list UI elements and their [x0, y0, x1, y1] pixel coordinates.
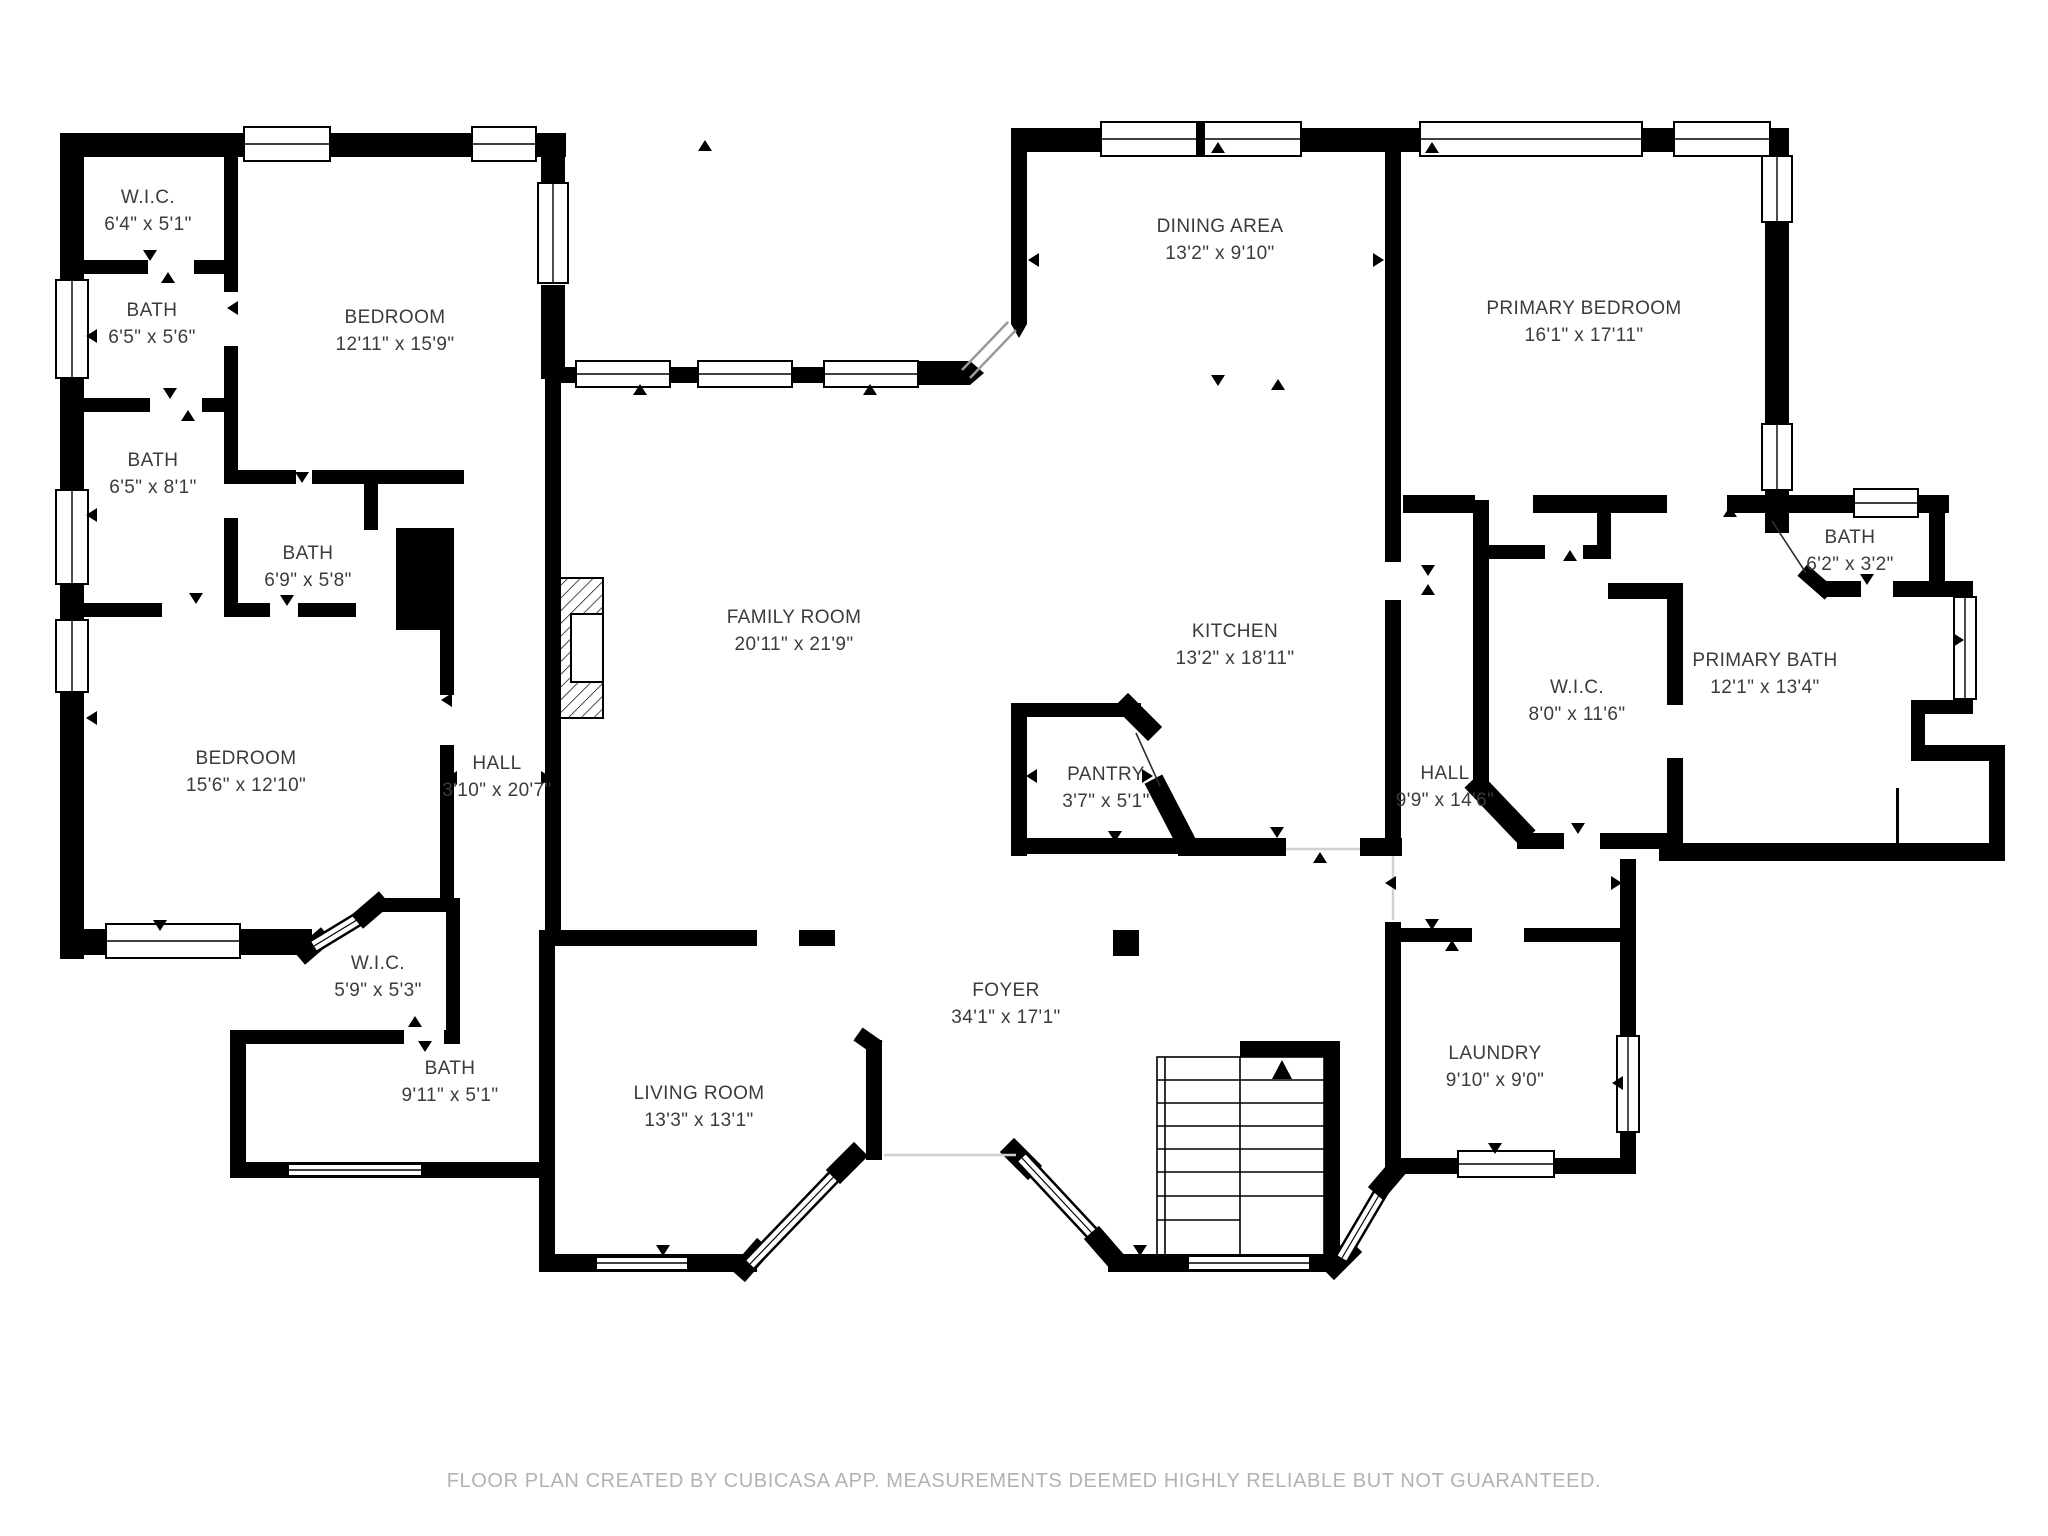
room-label-bedroom-top: BEDROOM12'11" x 15'9": [336, 304, 455, 358]
door-arrow-icon: [1270, 827, 1284, 838]
door-arrow-icon: [408, 1016, 422, 1027]
door-arrow-icon: [161, 272, 175, 283]
door-arrow-icon: [418, 1041, 432, 1052]
door-arrow-icon: [295, 472, 309, 483]
door-arrow-icon: [441, 693, 452, 707]
room-label-primary-bedroom: PRIMARY BEDROOM16'1" x 17'11": [1486, 295, 1681, 349]
door-arrow-icon: [698, 140, 712, 151]
room-label-living-room: LIVING ROOM13'3" x 13'1": [633, 1080, 764, 1134]
door-arrow-icon: [1571, 823, 1585, 834]
room-label-bath-mid-left: BATH6'5" x 8'1": [109, 447, 196, 501]
room-label-bedroom-left: BEDROOM15'6" x 12'10": [186, 745, 306, 799]
door-arrow-icon: [1026, 769, 1037, 783]
door-arrow-icon: [227, 301, 238, 315]
room-label-pantry: PANTRY3'7" x 5'1": [1062, 761, 1149, 815]
door-arrow-icon: [1421, 584, 1435, 595]
room-label-primary-bath: PRIMARY BATH12'1" x 13'4": [1692, 647, 1837, 701]
door-arrow-icon: [1421, 565, 1435, 576]
door-arrow-icon: [189, 593, 203, 604]
room-label-foyer: FOYER34'1" x 17'1": [951, 977, 1060, 1031]
room-label-hall-right: HALL9'9" x 14'6": [1396, 760, 1494, 814]
door-arrow-icon: [1373, 253, 1384, 267]
room-label-bath-top-left: BATH6'5" x 5'6": [108, 297, 195, 351]
room-label-bath-top-right: BATH6'2" x 3'2": [1806, 524, 1893, 578]
room-label-family-room: FAMILY ROOM20'11" x 21'9": [727, 604, 862, 658]
door-arrow-icon: [1385, 876, 1396, 890]
room-label-wic-top-left: W.I.C.6'4" x 5'1": [104, 184, 191, 238]
room-label-wic-bottom-left: W.I.C.5'9" x 5'3": [334, 950, 421, 1004]
door-arrow-icon: [86, 711, 97, 725]
fireplace: [553, 578, 603, 718]
room-label-dining-area: DINING AREA13'2" x 9'10": [1157, 213, 1284, 267]
room-label-kitchen: KITCHEN13'2" x 18'11": [1176, 618, 1295, 672]
door-arrow-icon: [1028, 253, 1039, 267]
door-arrow-icon: [163, 388, 177, 399]
room-label-wic-right: W.I.C.8'0" x 11'6": [1528, 674, 1625, 728]
door-arrow-icon: [1563, 550, 1577, 561]
staircase: [1157, 1057, 1324, 1255]
stairs-up-arrow: [1272, 1060, 1292, 1079]
door-arrow-icon: [1211, 375, 1225, 386]
door-arrow-icon: [1271, 379, 1285, 390]
door-arrow-icon: [181, 410, 195, 421]
door-arrow-icon: [280, 595, 294, 606]
room-label-bath-center: BATH6'9" x 5'8": [264, 540, 351, 594]
door-arrow-icon: [1313, 852, 1327, 863]
footer-disclaimer: FLOOR PLAN CREATED BY CUBICASA APP. MEAS…: [0, 1470, 2048, 1493]
door-arrow-icon: [143, 250, 157, 261]
room-label-hall-left: HALL3'10" x 20'7": [442, 750, 551, 804]
room-label-bath-bottom-left: BATH9'11" x 5'1": [401, 1055, 498, 1109]
floor-plan-drawing: [0, 0, 2048, 1536]
room-label-laundry: LAUNDRY9'10" x 9'0": [1446, 1040, 1544, 1094]
floor-plan: W.I.C.6'4" x 5'1" BATH6'5" x 5'6" BATH6'…: [0, 0, 2048, 1536]
